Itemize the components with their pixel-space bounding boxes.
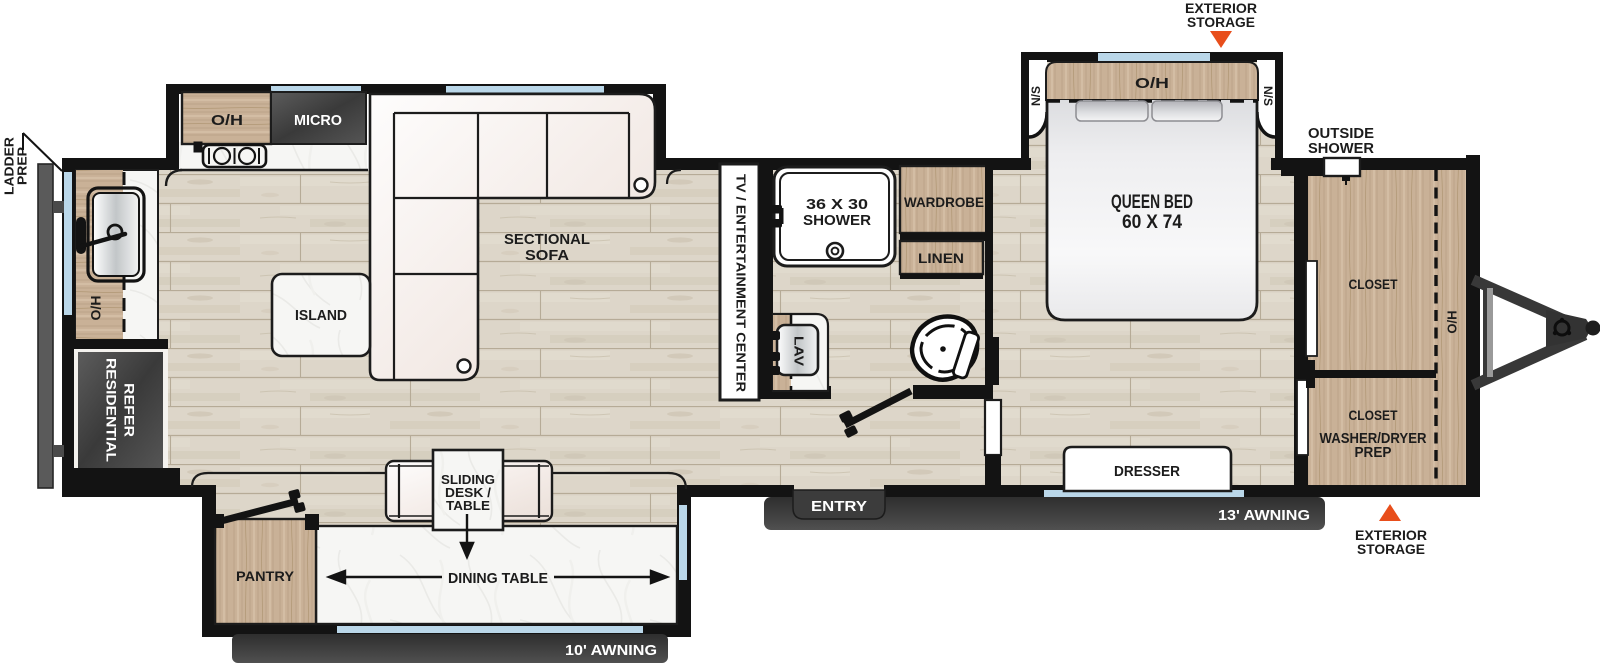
svg-text:LADDER: LADDER xyxy=(2,137,16,195)
svg-text:DESK /: DESK / xyxy=(445,486,492,500)
svg-text:SLIDING: SLIDING xyxy=(441,473,495,487)
svg-text:ISLAND: ISLAND xyxy=(295,307,347,324)
svg-text:MICRO: MICRO xyxy=(294,112,342,129)
svg-text:RESIDENTIAL: RESIDENTIAL xyxy=(103,358,119,462)
svg-text:O/H: O/H xyxy=(88,296,104,321)
svg-text:TABLE: TABLE xyxy=(446,499,490,513)
svg-text:CLOSET: CLOSET xyxy=(1349,276,1398,292)
svg-text:QUEEN BED: QUEEN BED xyxy=(1111,192,1193,213)
svg-text:WARDROBE: WARDROBE xyxy=(904,194,984,210)
svg-text:60 X 74: 60 X 74 xyxy=(1122,212,1182,233)
svg-text:DRESSER: DRESSER xyxy=(1114,464,1180,480)
svg-text:PANTRY: PANTRY xyxy=(236,568,295,584)
svg-text:O/H: O/H xyxy=(211,112,243,129)
svg-text:N/S: N/S xyxy=(1029,86,1043,106)
svg-text:STORAGE: STORAGE xyxy=(1357,542,1425,557)
svg-text:SHOWER: SHOWER xyxy=(1308,141,1375,157)
svg-text:13' AWNING: 13' AWNING xyxy=(1218,507,1310,524)
svg-text:LINEN: LINEN xyxy=(918,250,964,266)
svg-text:OUTSIDE: OUTSIDE xyxy=(1308,126,1374,142)
svg-text:36 X 30: 36 X 30 xyxy=(806,197,868,213)
svg-text:O/H: O/H xyxy=(1135,75,1169,92)
svg-text:SECTIONAL: SECTIONAL xyxy=(504,231,590,248)
svg-text:EXTERIOR: EXTERIOR xyxy=(1355,528,1427,543)
svg-text:O/H: O/H xyxy=(1444,310,1459,333)
svg-text:STORAGE: STORAGE xyxy=(1187,15,1255,30)
svg-text:EXTERIOR: EXTERIOR xyxy=(1185,1,1257,16)
svg-text:PREP: PREP xyxy=(15,147,29,185)
svg-text:LAV: LAV xyxy=(792,336,806,367)
svg-text:DINING TABLE: DINING TABLE xyxy=(448,570,548,587)
svg-text:SOFA: SOFA xyxy=(525,247,569,264)
svg-text:TV / ENTERTAINMENT CENTER: TV / ENTERTAINMENT CENTER xyxy=(734,174,749,393)
svg-text:10' AWNING: 10' AWNING xyxy=(565,642,657,659)
svg-text:SHOWER: SHOWER xyxy=(803,213,872,229)
svg-text:PREP: PREP xyxy=(1355,444,1392,461)
svg-text:CLOSET: CLOSET xyxy=(1349,407,1398,423)
svg-text:N/S: N/S xyxy=(1261,86,1275,106)
svg-text:REFER: REFER xyxy=(121,383,137,437)
svg-text:ENTRY: ENTRY xyxy=(811,499,867,515)
